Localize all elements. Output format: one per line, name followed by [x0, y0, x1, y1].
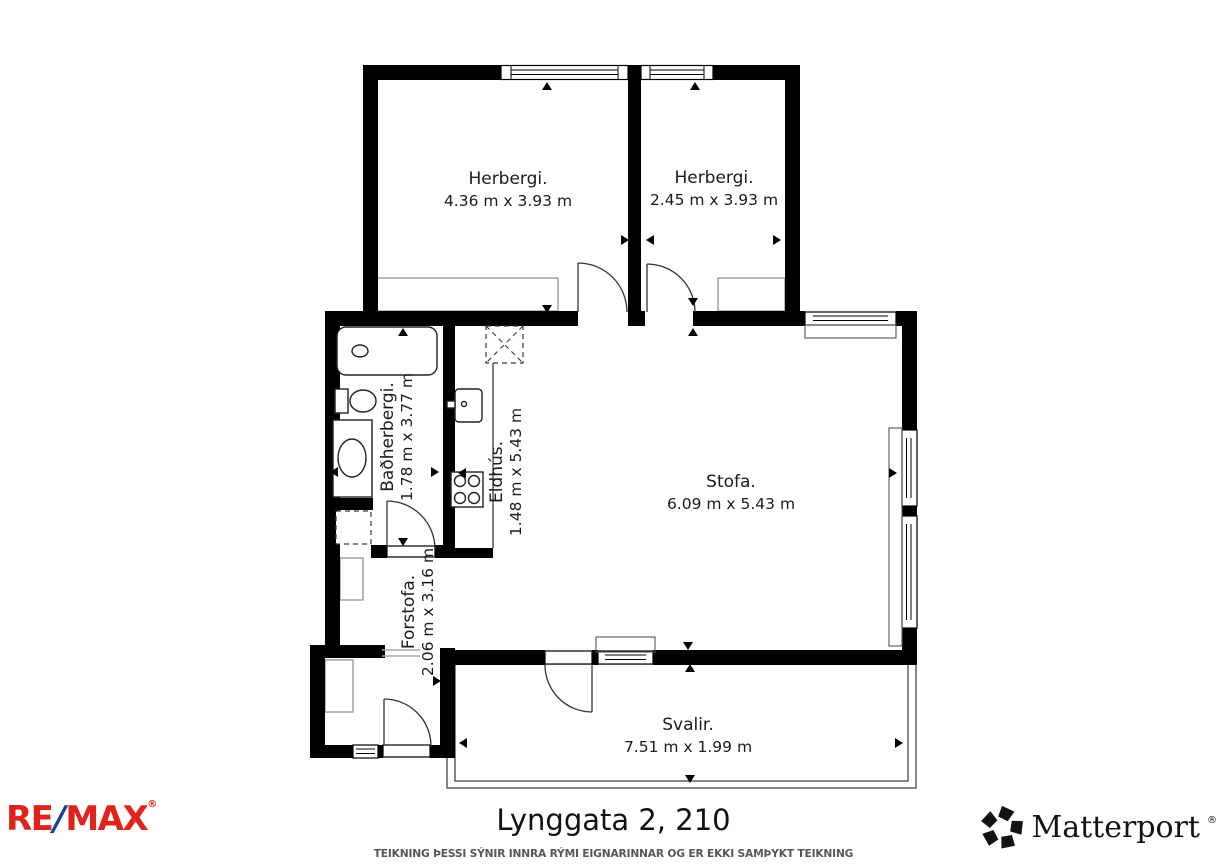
room-label-herbergi-2: Herbergi. 2.45 m x 3.93 m: [650, 168, 778, 209]
room-name: Herbergi.: [468, 169, 547, 189]
toilet: [335, 389, 348, 413]
room-dims: 2.45 m x 3.93 m: [650, 191, 778, 209]
room-label-stofa: Stofa. 6.09 m x 5.43 m: [667, 472, 795, 513]
matterport-wordmark: Matterport: [1032, 810, 1200, 845]
vent-hood-icon: [486, 326, 523, 363]
room-dims: 2.06 m x 3.16 m: [419, 548, 437, 676]
floor-plan-svg: Herbergi. 4.36 m x 3.93 m Herbergi. 2.45…: [0, 0, 1227, 867]
room-label-badherbergi: Baðherbergi. 1.78 m x 3.77 m: [378, 373, 416, 501]
matterport-logo: Matterport ®: [979, 804, 1217, 850]
room-name: Herbergi.: [674, 168, 753, 188]
room-dims: 7.51 m x 1.99 m: [624, 738, 752, 756]
closet-dashed-box: [336, 511, 371, 544]
matterport-registered-mark: ®: [1207, 815, 1217, 826]
room-label-svalir: Svalir. 7.51 m x 1.99 m: [624, 715, 752, 756]
stove: [451, 472, 483, 507]
room-dims: 6.09 m x 5.43 m: [667, 495, 795, 513]
floorplan-page: Herbergi. 4.36 m x 3.93 m Herbergi. 2.45…: [0, 0, 1227, 867]
room-name: Forstofa.: [399, 575, 419, 649]
room-dims: 1.78 m x 3.77 m: [398, 373, 416, 501]
room-label-forstofa: Forstofa. 2.06 m x 3.16 m: [399, 548, 437, 676]
matterport-pinwheel-icon: [979, 804, 1025, 850]
room-name: Stofa.: [706, 472, 756, 492]
room-name: Svalir.: [662, 715, 714, 735]
room-name: Eldhús.: [487, 441, 507, 503]
room-name: Baðherbergi.: [378, 382, 398, 492]
room-dims: 1.48 m x 5.43 m: [507, 408, 525, 536]
room-dims: 4.36 m x 3.93 m: [444, 192, 572, 210]
room-label-herbergi-1: Herbergi. 4.36 m x 3.93 m: [444, 169, 572, 210]
